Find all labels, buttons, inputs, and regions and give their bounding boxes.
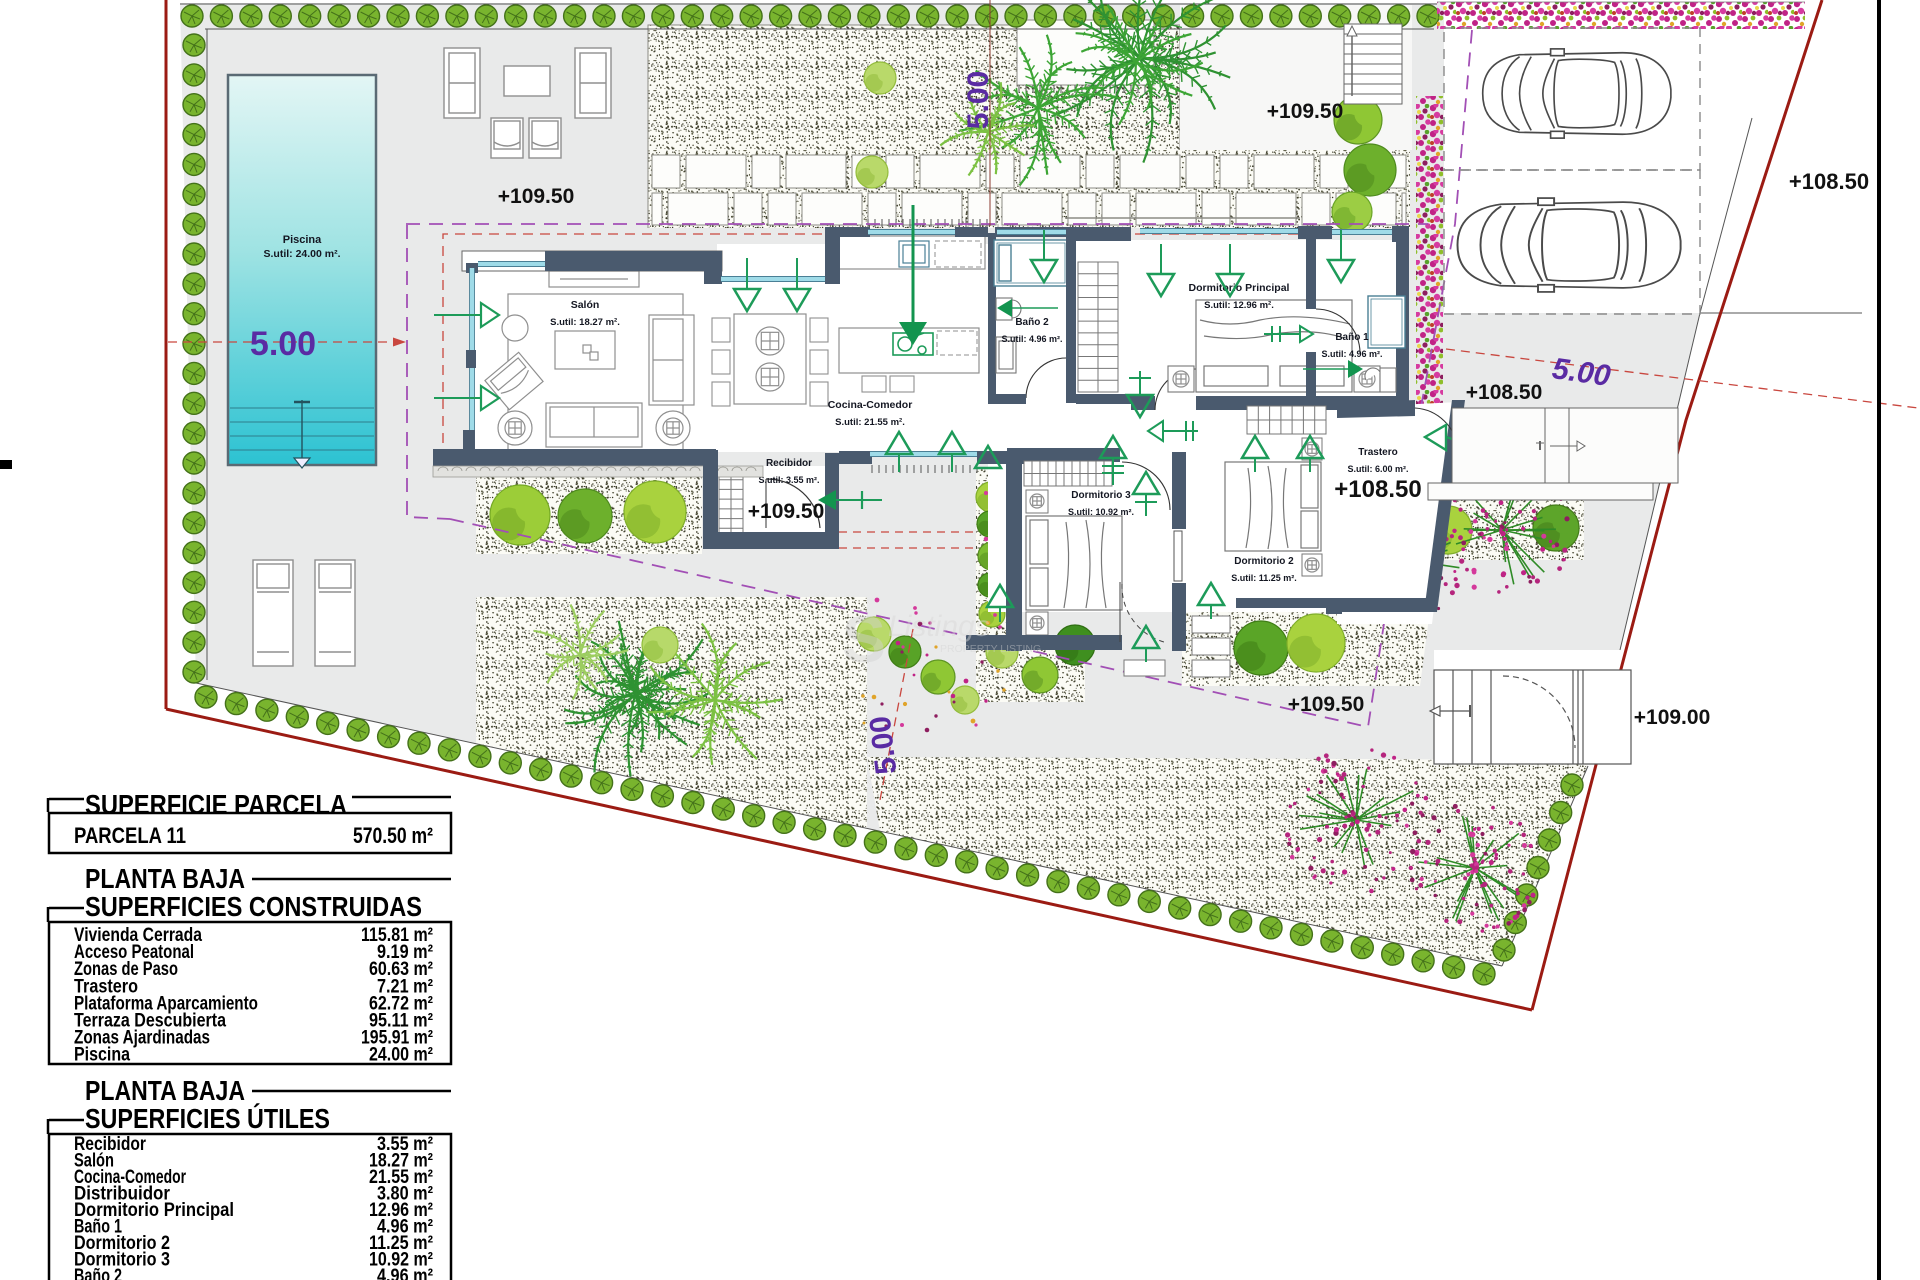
svg-text:PROPERTY LISTING: PROPERTY LISTING [940, 643, 1041, 655]
svg-text:SUPERFICIES ÚTILES: SUPERFICIES ÚTILES [85, 1103, 330, 1134]
svg-text:+109.50: +109.50 [748, 500, 825, 523]
svg-text:Piscina: Piscina [283, 234, 322, 246]
svg-text:Dormitorio Principal: Dormitorio Principal [1189, 282, 1290, 294]
svg-text:S.util: 3.55 m².: S.util: 3.55 m². [758, 475, 819, 485]
svg-text:Dormitorio 2: Dormitorio 2 [1234, 556, 1294, 567]
svg-text:+109.50: +109.50 [498, 185, 575, 208]
svg-text:PLANTA BAJA: PLANTA BAJA [85, 863, 245, 894]
svg-text:Salón: Salón [571, 299, 600, 311]
svg-text:Listings: Listings [888, 610, 990, 643]
svg-text:SUPERFICIES CONSTRUIDAS: SUPERFICIES CONSTRUIDAS [85, 891, 422, 922]
svg-text:+108.50: +108.50 [1789, 169, 1869, 194]
svg-text:4.96 m²: 4.96 m² [377, 1266, 433, 1280]
svg-text:S.util: 18.27 m².: S.util: 18.27 m². [550, 317, 620, 328]
svg-text:PLANTA BAJA: PLANTA BAJA [85, 1075, 245, 1106]
svg-text:Recibidor: Recibidor [766, 458, 812, 469]
svg-text:Baño 2: Baño 2 [74, 1266, 122, 1280]
svg-text:Dormitorio 3: Dormitorio 3 [1071, 490, 1131, 501]
svg-text:Cocina-Comedor: Cocina-Comedor [828, 399, 913, 411]
svg-text:+109.00: +109.00 [1634, 706, 1711, 729]
svg-text:Trastero: Trastero [1358, 447, 1397, 458]
svg-text:S.util: 6.00 m².: S.util: 6.00 m². [1347, 464, 1408, 474]
svg-text:5.00: 5.00 [864, 714, 904, 776]
svg-text:5.00: 5.00 [962, 71, 995, 129]
svg-text:Baño 2: Baño 2 [1015, 317, 1049, 328]
svg-text:+108.50: +108.50 [1334, 476, 1421, 503]
svg-text:+109.50: +109.50 [1267, 100, 1344, 123]
svg-text:S.util: 4.96 m².: S.util: 4.96 m². [1321, 349, 1382, 359]
svg-text:S.util: 11.25 m².: S.util: 11.25 m². [1231, 573, 1297, 583]
svg-text:5.00: 5.00 [250, 325, 316, 363]
svg-text:Piscina: Piscina [74, 1045, 130, 1066]
svg-text:S.util: 12.96 m².: S.util: 12.96 m². [1204, 300, 1274, 311]
svg-text:24.00 m²: 24.00 m² [369, 1045, 433, 1066]
svg-text:S.util: 4.96 m².: S.util: 4.96 m². [1001, 334, 1062, 344]
svg-text:S.util: 21.55 m².: S.util: 21.55 m². [835, 417, 905, 428]
svg-text:S.util: 24.00 m².: S.util: 24.00 m². [263, 248, 340, 260]
svg-text:S: S [842, 602, 886, 676]
svg-text:570.50 m²: 570.50 m² [353, 823, 433, 848]
svg-text:Baño 1: Baño 1 [1335, 332, 1369, 343]
svg-text:S.util: 10.92 m².: S.util: 10.92 m². [1068, 507, 1134, 517]
svg-text:PARCELA 11: PARCELA 11 [74, 823, 186, 848]
svg-text:+108.50: +108.50 [1466, 381, 1543, 404]
svg-text:+109.50: +109.50 [1288, 693, 1365, 716]
